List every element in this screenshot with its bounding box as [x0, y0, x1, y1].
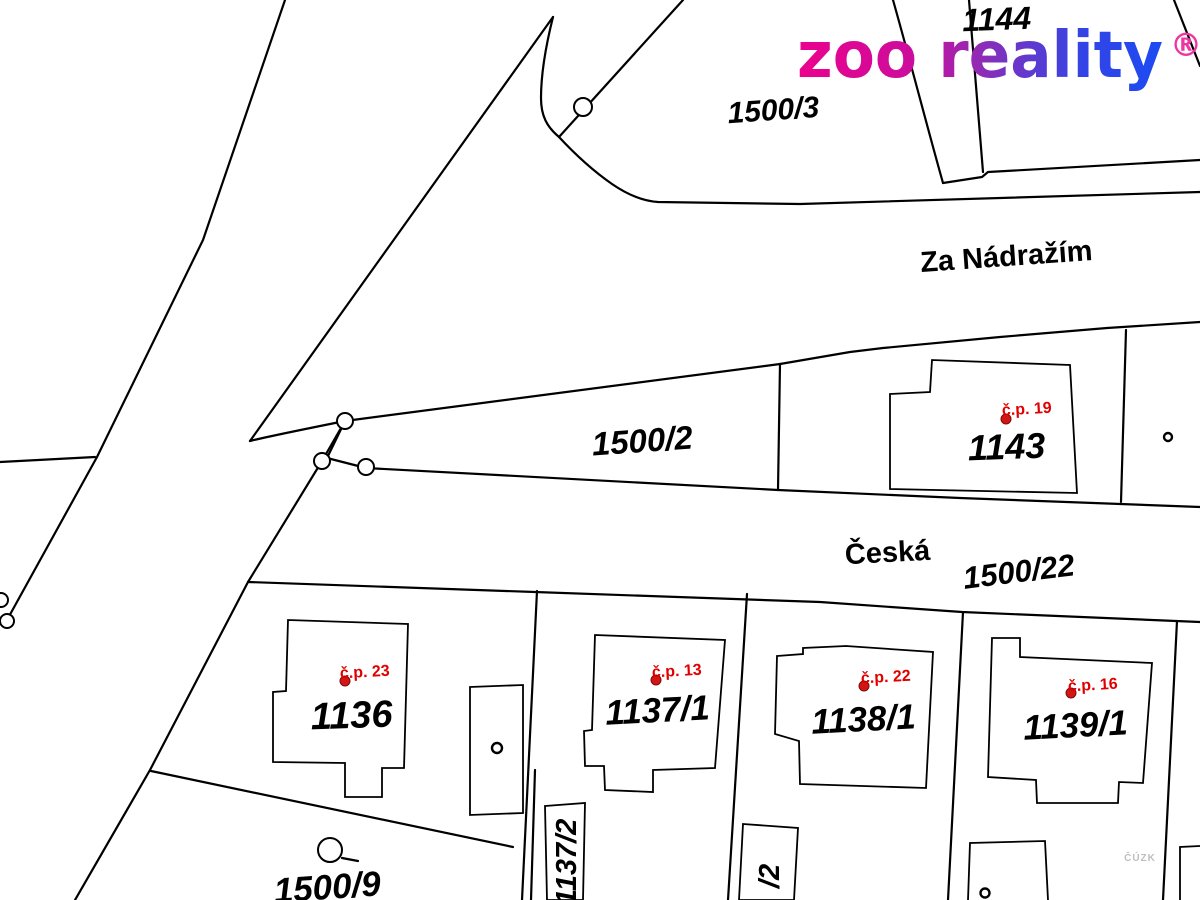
street-label-ceska: Česká: [844, 533, 932, 571]
house-number-label-13: č.p. 13: [651, 662, 702, 682]
house-number-label-22: č.p. 22: [860, 668, 911, 688]
parcel-labels: 1144 1500/3 1500/2 1143 1500/22 1136 113…: [272, 0, 1128, 900]
boundary-line-southwest-diagonal: [75, 421, 345, 900]
parcel-label-1500-22: 1500/22: [961, 547, 1076, 595]
street-labels: Za Nádražím Česká: [844, 235, 1094, 571]
vertex-circle: [314, 453, 330, 469]
house-number-dots: [340, 414, 1076, 698]
parcel-label-1138-1: 1138/1: [810, 697, 916, 741]
parcel-1500-2-highlight: [327, 364, 780, 490]
boundary-line-1137-2-west: [522, 591, 537, 900]
boundary-line-ceska-north: [778, 490, 1200, 507]
parcel-label-1500-3: 1500/3: [726, 91, 820, 130]
parcel-label-1137-2: 1137/2: [551, 819, 583, 900]
zoo-reality-logo: zoo reality ®: [797, 19, 1200, 93]
boundary-line-spike-left: [250, 17, 553, 441]
boundary-line-1138-1139-divider: [948, 612, 963, 900]
parcel-label-1143: 1143: [967, 425, 1046, 469]
small-map-circle: [981, 889, 990, 898]
well-circle: [318, 838, 342, 862]
boundary-line-1137-1138-divider: [728, 594, 747, 900]
parcel-label-1500-9: 1500/9: [272, 864, 382, 900]
boundary-line-1143-north: [780, 322, 1200, 364]
boundary-line-diagonal-top: [559, 0, 683, 137]
parcel-label-1139-1: 1139/1: [1022, 703, 1128, 747]
map-canvas: 1144 1500/3 1500/2 1143 1500/22 1136 113…: [0, 0, 1200, 900]
vertex-circle: [337, 413, 353, 429]
small-map-circle: [492, 743, 502, 753]
boundary-line-1139-east: [1163, 621, 1177, 900]
boundary-line-1500-9-north: [151, 771, 513, 847]
house-number-label-19: č.p. 19: [1001, 400, 1052, 420]
building-outlines: [273, 360, 1200, 900]
logo-wordmark: zoo reality: [797, 19, 1163, 93]
vertex-circle: [574, 98, 592, 116]
boundary-line-1143-east: [1121, 330, 1126, 502]
boundary-line-northwest: [7, 0, 285, 620]
parcel-label-1138-2-partial: /2: [754, 864, 786, 890]
well-tick-line: [342, 858, 358, 861]
cadastral-map: 1144 1500/3 1500/2 1143 1500/22 1136 113…: [0, 0, 1200, 900]
parcel-label-1137-1: 1137/1: [604, 688, 710, 732]
boundary-line-1137-2-west-inner: [531, 770, 535, 900]
vertex-circle: [0, 593, 8, 607]
street-label-za-nadrazim: Za Nádražím: [919, 235, 1093, 279]
small-map-circle: [1164, 433, 1172, 441]
house-number-label-16: č.p. 16: [1067, 676, 1118, 696]
parcel-label-1500-2: 1500/2: [591, 419, 695, 463]
cuzk-watermark: ČÚZK: [1124, 851, 1156, 864]
vertex-circle: [0, 614, 14, 628]
vertex-circle: [358, 459, 374, 475]
registered-trademark-icon: ®: [1170, 26, 1200, 64]
parcel-label-1136: 1136: [310, 694, 394, 739]
boundary-line-ceska-south: [248, 582, 1200, 622]
boundary-line-vpoint-curve: [250, 421, 345, 441]
building-corner-outline: [1180, 846, 1200, 900]
house-number-label-23: č.p. 23: [339, 663, 390, 683]
boundary-line-west-short: [0, 457, 95, 462]
